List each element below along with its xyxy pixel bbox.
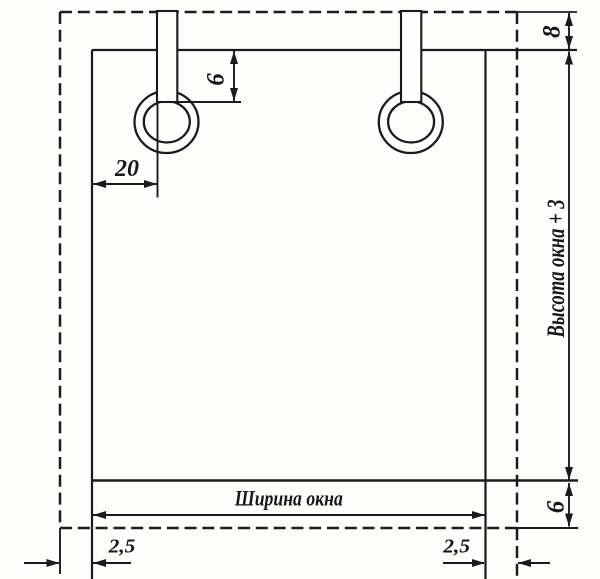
svg-text:6: 6 [203,73,230,86]
svg-text:2,5: 2,5 [108,536,136,558]
svg-text:2,5: 2,5 [442,536,470,558]
svg-text:6: 6 [542,500,569,513]
svg-text:Высота окна + 3: Высота окна + 3 [543,200,570,339]
svg-text:8: 8 [539,25,566,38]
svg-text:20: 20 [114,156,139,182]
svg-text:Ширина окна: Ширина окна [234,486,343,511]
